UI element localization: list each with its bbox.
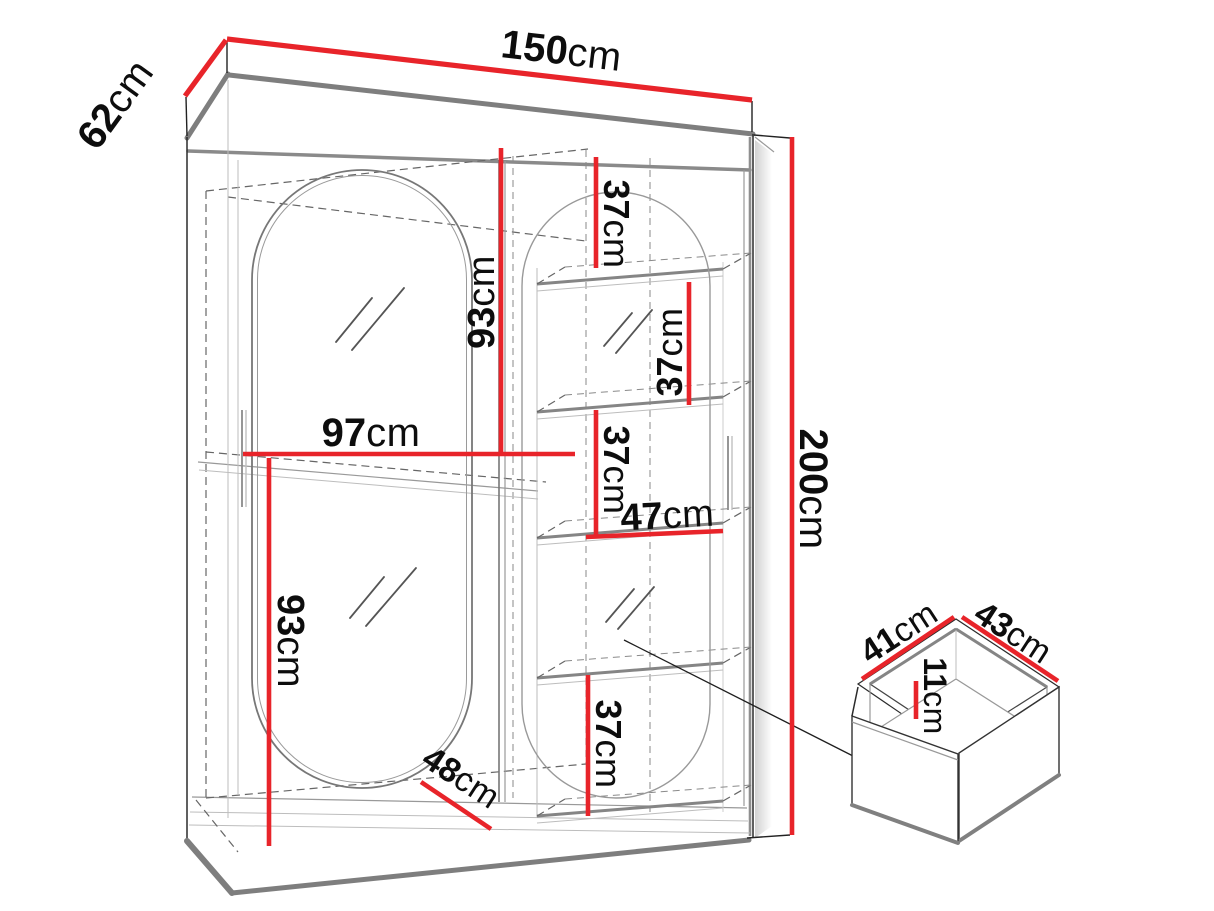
dim-shelf-width-label: 47cm [619, 493, 715, 540]
dim-width-line [227, 39, 752, 100]
plinth-bottom-line [189, 825, 750, 833]
tick-height-top [754, 135, 790, 138]
wardrobe-dimension-diagram: 62cm 150cm 200cm 93cm 97cm 93cm 37cm 37c… [0, 0, 1214, 911]
right-side-shadow [755, 140, 772, 838]
sliding-doors [228, 80, 744, 818]
dim-base-diagonal-label: 48cm [415, 739, 506, 817]
dim-lower-left-height-label: 93cm [269, 594, 311, 688]
crown-bottom-edge [188, 151, 750, 170]
left-door-mirror-outer [252, 170, 472, 788]
back-bottom-edge-dashed [206, 764, 586, 798]
dim-height-label: 200cm [791, 428, 835, 549]
dim-left-section-width-label: 97cm [322, 411, 421, 455]
dim-shelf-gap-2-label: 37cm [649, 307, 690, 396]
dim-upper-left-height-label: 93cm [461, 255, 503, 349]
drawer-front-panel-corner [852, 687, 858, 716]
left-door-mirror-inner [258, 176, 467, 783]
left-section-shelf [198, 452, 546, 499]
shelf-1 [537, 253, 751, 291]
bottom-front-edge [232, 840, 749, 893]
dim-depth-label: 62cm [69, 51, 163, 157]
diagram-canvas: 62cm 150cm 200cm 93cm 97cm 93cm 37cm 37c… [0, 0, 1214, 911]
left-door-handle [242, 410, 246, 507]
mid-shelf-thickness [199, 470, 538, 499]
interior-hidden-lines [196, 149, 650, 852]
drawer-pointer-line [624, 640, 855, 757]
top-front-edge [229, 75, 753, 134]
shelf-4 [537, 647, 751, 685]
shelf-2 [537, 381, 751, 419]
back-top-edge-dashed [206, 149, 588, 191]
dim-shelf-gap-4-label: 37cm [588, 699, 629, 788]
dim-shelf-gap-1-label: 37cm [596, 179, 637, 268]
tick-depth [186, 97, 187, 136]
right-door-handle [728, 436, 732, 510]
bottom-left-corner-edge [187, 841, 232, 893]
dim-drawer-height-label: 11cm [917, 657, 953, 734]
